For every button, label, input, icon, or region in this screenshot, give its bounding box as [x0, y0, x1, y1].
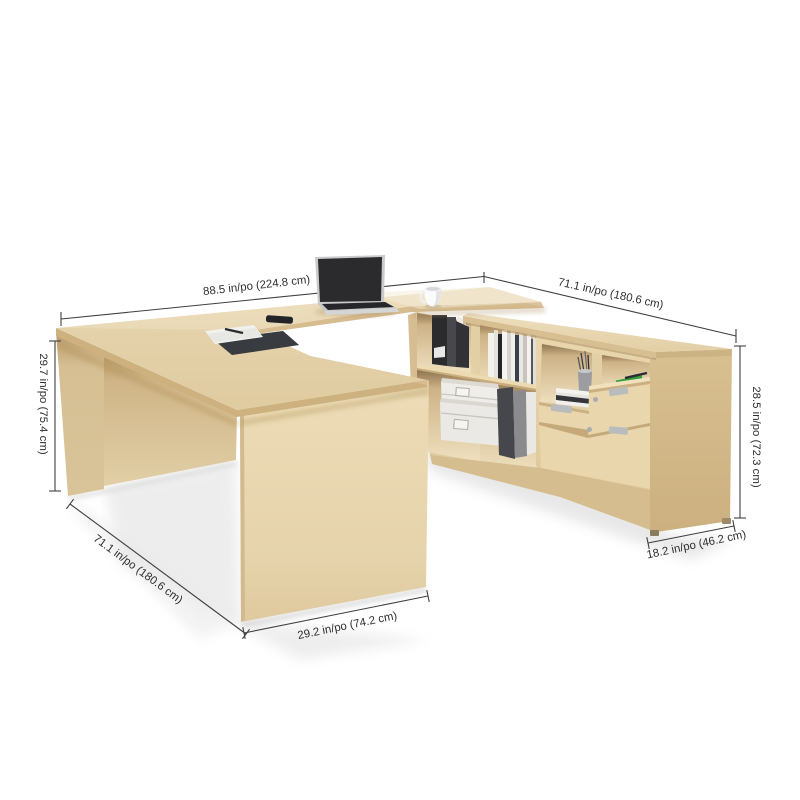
svg-text:28.5 in/po (72.3 cm): 28.5 in/po (72.3 cm) — [750, 386, 762, 488]
svg-text:29.7 in/po (75.4 cm): 29.7 in/po (75.4 cm) — [37, 353, 49, 455]
